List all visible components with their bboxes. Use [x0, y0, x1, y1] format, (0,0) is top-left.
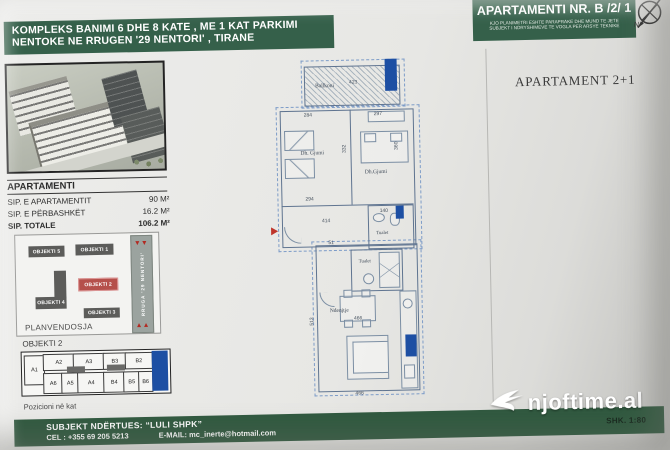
living-dim-side: 513: [309, 317, 315, 325]
apartment-number-banner: APARTAMENTI NR. B /2/ 1 KJO PLANIMETRI E…: [472, 0, 636, 41]
chair: [361, 289, 370, 297]
road-label: RRUGA '29 NENTORI': [139, 252, 145, 316]
apartment-number: APARTAMENTI NR. B /2/ 1: [472, 1, 635, 18]
site-block-objekti-4: OBJEKTI 4: [35, 297, 66, 310]
living-dim-w: 466: [354, 315, 362, 321]
unit-a4: A4: [77, 372, 105, 394]
corridor-dim: 414: [322, 218, 330, 224]
info-label: SIP. E PËRBASHKËT: [8, 208, 86, 219]
apartment-info-table: APARTAMENTI SIP. E APARTAMENTIT 90 M² SI…: [7, 173, 170, 230]
site-plan: OBJEKTI 5 OBJEKTI 1 OBJEKTI 2 OBJEKTI 4 …: [14, 232, 161, 337]
info-title: APARTAMENTI: [7, 177, 167, 195]
road-arrow: [135, 241, 139, 245]
chair: [344, 320, 353, 328]
stove: [404, 364, 415, 378]
info-label: SIP. E APARTAMENTIT: [7, 196, 91, 207]
builder-email: E-MAIL: mc_inerte@hotmail.com: [159, 428, 277, 439]
bed: [284, 130, 314, 151]
info-row: SIP. E APARTAMENTIT 90 M²: [7, 194, 169, 206]
building-render-image: [5, 61, 167, 174]
njoftime-logo-text: njoftime.al: [527, 388, 643, 416]
stair-core: [107, 364, 125, 370]
site-road-strip: RRUGA '29 NENTORI': [130, 235, 154, 333]
info-row: SIP. E PËRBASHKËT 16.2 M²: [8, 206, 170, 218]
balcony-label: Ballkoni: [315, 83, 334, 89]
site-block-objekti-5: OBJEKTI 5: [28, 246, 64, 258]
floor-plan: Ballkoni 423 Dh. Gjumi 284 294 332 Dh.Gj…: [266, 52, 429, 399]
bedroom1-label: Dh. Gjumi: [300, 150, 324, 156]
leaflet-photo: KOMPLEKS BANIMI 6 DHE 8 KATE , ME 1 KAT …: [0, 0, 670, 450]
unit-b1-highlight: [152, 351, 169, 391]
entry-arrow: [271, 227, 278, 235]
project-title-banner: KOMPLEKS BANIMI 6 DHE 8 KATE , ME 1 KAT …: [4, 15, 335, 55]
info-label: SIP. TOTALE: [8, 221, 56, 231]
stair-core: [67, 366, 85, 372]
north-arrow-icon: N: [633, 0, 664, 36]
builder-phone: CEL : +355 69 205 5213: [46, 431, 128, 442]
balcony-highlight: [385, 59, 398, 91]
floor-strip-caption: Pozicioni në kat: [24, 401, 77, 411]
north-label: N: [634, 22, 639, 29]
bedroom2-dim-side: 360: [393, 141, 399, 149]
bedroom1-dim-top: 284: [304, 112, 312, 118]
unit-b2: B2: [125, 352, 153, 370]
njoftime-watermark: njoftime.al: [489, 384, 670, 420]
chair: [362, 319, 371, 327]
info-value: 106.2 M²: [138, 218, 170, 228]
bedroom1-dim-bottom: 294: [305, 196, 313, 202]
divider-line: [485, 49, 493, 405]
pillow: [390, 133, 402, 142]
road-arrow: [137, 323, 141, 327]
render-trees: [128, 154, 166, 169]
road-arrow: [142, 241, 146, 245]
bedroom1-dim-side: 332: [341, 145, 347, 153]
info-value: 16.2 M²: [142, 206, 169, 216]
site-block-objekti-3: OBJEKTI 3: [84, 308, 120, 319]
bed: [285, 158, 315, 179]
chair: [343, 290, 352, 298]
floor-strip-title: OBJEKTI 2: [22, 339, 62, 349]
wall-highlight: [396, 206, 404, 219]
road-arrow: [144, 323, 148, 327]
njoftime-bird-icon: [489, 387, 532, 419]
site-block-objekti-2: OBJEKTI 2: [78, 278, 118, 292]
info-value: 90 M²: [149, 194, 170, 203]
toilet1-label: Tualet: [376, 231, 388, 236]
info-row: SIP. TOTALE 106.2 M²: [8, 218, 170, 230]
kitchen-highlight: [405, 334, 416, 356]
plan-title: APARTAMENT 2+1: [515, 72, 636, 91]
balcony-dim: 423: [349, 80, 357, 86]
bedroom2-dim-top: 297: [374, 111, 382, 117]
site-plan-title: PLANVENDOSJA: [25, 322, 93, 332]
bedroom2-label: Dh.Gjumi: [365, 169, 387, 175]
pillow: [364, 133, 376, 142]
leaflet-page: KOMPLEKS BANIMI 6 DHE 8 KATE , ME 1 KAT …: [0, 0, 670, 450]
site-block-objekti-1: OBJEKTI 1: [75, 244, 113, 256]
living-dim-bottom: 466: [355, 390, 363, 396]
floor-strip: A1 A2 A3 B3 B2 A6 A5 A4 B4 B5 B6: [21, 348, 172, 396]
sofa-seat: [352, 341, 388, 374]
living-label: Ndenjtje: [330, 308, 349, 314]
